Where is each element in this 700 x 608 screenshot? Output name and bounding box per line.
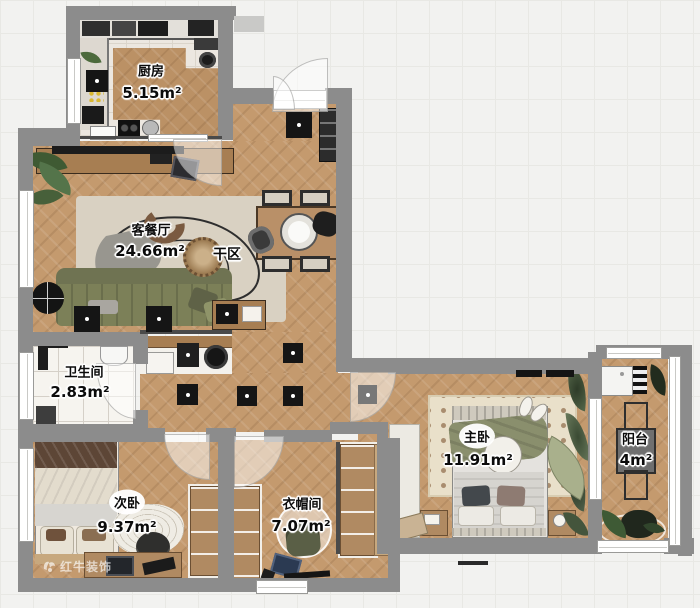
dimension-dash (458, 561, 488, 565)
second-bedroom-shelving (190, 486, 220, 576)
room-area-master-bedroom: 11.91m² (443, 451, 513, 469)
floor-lamp (32, 282, 64, 314)
window-balcony-bottom (597, 540, 669, 553)
balcony-washer (601, 366, 633, 396)
master-pillow-brown (496, 485, 525, 506)
wall-corridor-bottom-a (33, 428, 165, 442)
laundry-cabinet (146, 352, 174, 374)
ceiling-light (237, 386, 257, 406)
ceiling-light (177, 384, 198, 405)
ceiling-light (146, 306, 172, 332)
wall-corridor-bottom-b (206, 428, 236, 442)
kitchen-small-appliance (82, 106, 104, 124)
ceiling-light (286, 112, 312, 138)
wall-master-bottom (377, 538, 600, 554)
dining-chair-seat (265, 193, 289, 203)
window-balcony-top (606, 347, 662, 359)
wall-bath-right-upper (133, 332, 148, 364)
kitchen-cooktop (118, 120, 140, 136)
ceiling-light-gray (358, 385, 377, 404)
shower-panel (38, 346, 48, 370)
media-device (150, 154, 172, 164)
window-living-left (19, 190, 34, 288)
cloakroom-inner-wall (336, 442, 340, 554)
dining-chair-seat (303, 193, 327, 203)
dining-chair-seat (303, 259, 327, 269)
room-label-master-bedroom: 主卧 (459, 424, 495, 449)
window-bedroom2-left (19, 448, 34, 542)
dryer-round (204, 345, 228, 369)
kitchen-appliance-block (82, 21, 110, 36)
room-label-kitchen: 厨房 (138, 61, 164, 80)
pillow-accent (46, 529, 66, 541)
room-label-balcony: 阳台 (622, 429, 648, 448)
room-area-balcony: 4m² (620, 451, 653, 469)
dining-chair-seat (265, 259, 289, 269)
bed-blanket-brown (35, 442, 117, 468)
nightstand-book (424, 514, 440, 525)
ceiling-light (74, 306, 100, 332)
window-balcony-right (669, 356, 681, 546)
window-kitchen-left (67, 58, 81, 124)
watermark-logo-icon (42, 559, 57, 574)
ceiling-light (283, 386, 303, 406)
room-area-kitchen: 5.15m² (122, 84, 181, 102)
label-dry-zone: 干区 (213, 244, 241, 264)
window-bedrooms-bottom (256, 580, 308, 594)
wall-entry-left (233, 88, 273, 104)
ceiling-light (283, 343, 303, 363)
cloakroom-wardrobe-left (232, 486, 260, 580)
drying-rack-bottom (624, 470, 648, 500)
wall-bedroom2-cloak-divider (218, 442, 234, 578)
washer-door-dot (186, 353, 190, 357)
kitchen-appliance-block (112, 21, 136, 36)
kitchen-stool (199, 52, 216, 68)
kitchen-appliance-block (138, 21, 168, 36)
master-tv-screen (516, 370, 542, 377)
wall-corridor-to-master (336, 358, 392, 372)
room-area-living: 24.66m² (115, 242, 185, 260)
kitchen-side-table (194, 38, 220, 50)
master-pillow-dark (461, 485, 490, 507)
wall-cloakroom-right (388, 438, 400, 588)
balcony-washer-dot (620, 372, 624, 376)
room-area-bathroom: 2.83m² (50, 383, 109, 401)
switch-panel (242, 306, 262, 322)
ceiling-light (216, 304, 238, 324)
ceiling-light (86, 70, 108, 92)
room-label-living: 客餐厅 (131, 220, 170, 239)
floorplan-canvas: 厨房 5.15m² 客餐厅 24.66m² 干区 卫生间 2.83m² 次卧 9… (0, 0, 700, 608)
window-bath-left (19, 352, 34, 420)
window-master-balcony (589, 398, 602, 500)
wall-living-bottom (18, 332, 140, 346)
room-area-second-bedroom: 9.37m² (97, 518, 156, 536)
master-tv-screen (546, 370, 574, 377)
room-label-second-bedroom: 次卧 (109, 490, 145, 515)
balcony-shelf-striped (633, 366, 647, 394)
watermark: 红牛装饰 (42, 558, 112, 575)
room-label-bathroom: 卫生间 (64, 362, 103, 381)
master-pillow-white (500, 506, 536, 526)
pendant-lamp (280, 213, 318, 251)
bed-quilt-cream (35, 468, 117, 504)
wall-neighbor-block (234, 16, 264, 32)
room-label-cloakroom: 衣帽间 (282, 494, 321, 513)
master-pillow-white (458, 506, 494, 526)
cloakroom-wardrobe-right (340, 444, 376, 556)
room-area-cloakroom: 7.07m² (271, 517, 330, 535)
wall-bedrooms-bottom (18, 578, 400, 592)
master-footboard (452, 528, 546, 536)
wall-master-left (377, 432, 388, 542)
bath-mat (36, 406, 56, 424)
watermark-brand-text: 红牛装饰 (60, 558, 112, 575)
tv-screen (52, 146, 184, 154)
wall-kitchen-right (218, 18, 233, 140)
wall-kitchen-top (66, 6, 236, 20)
wall-living-right (336, 88, 352, 348)
